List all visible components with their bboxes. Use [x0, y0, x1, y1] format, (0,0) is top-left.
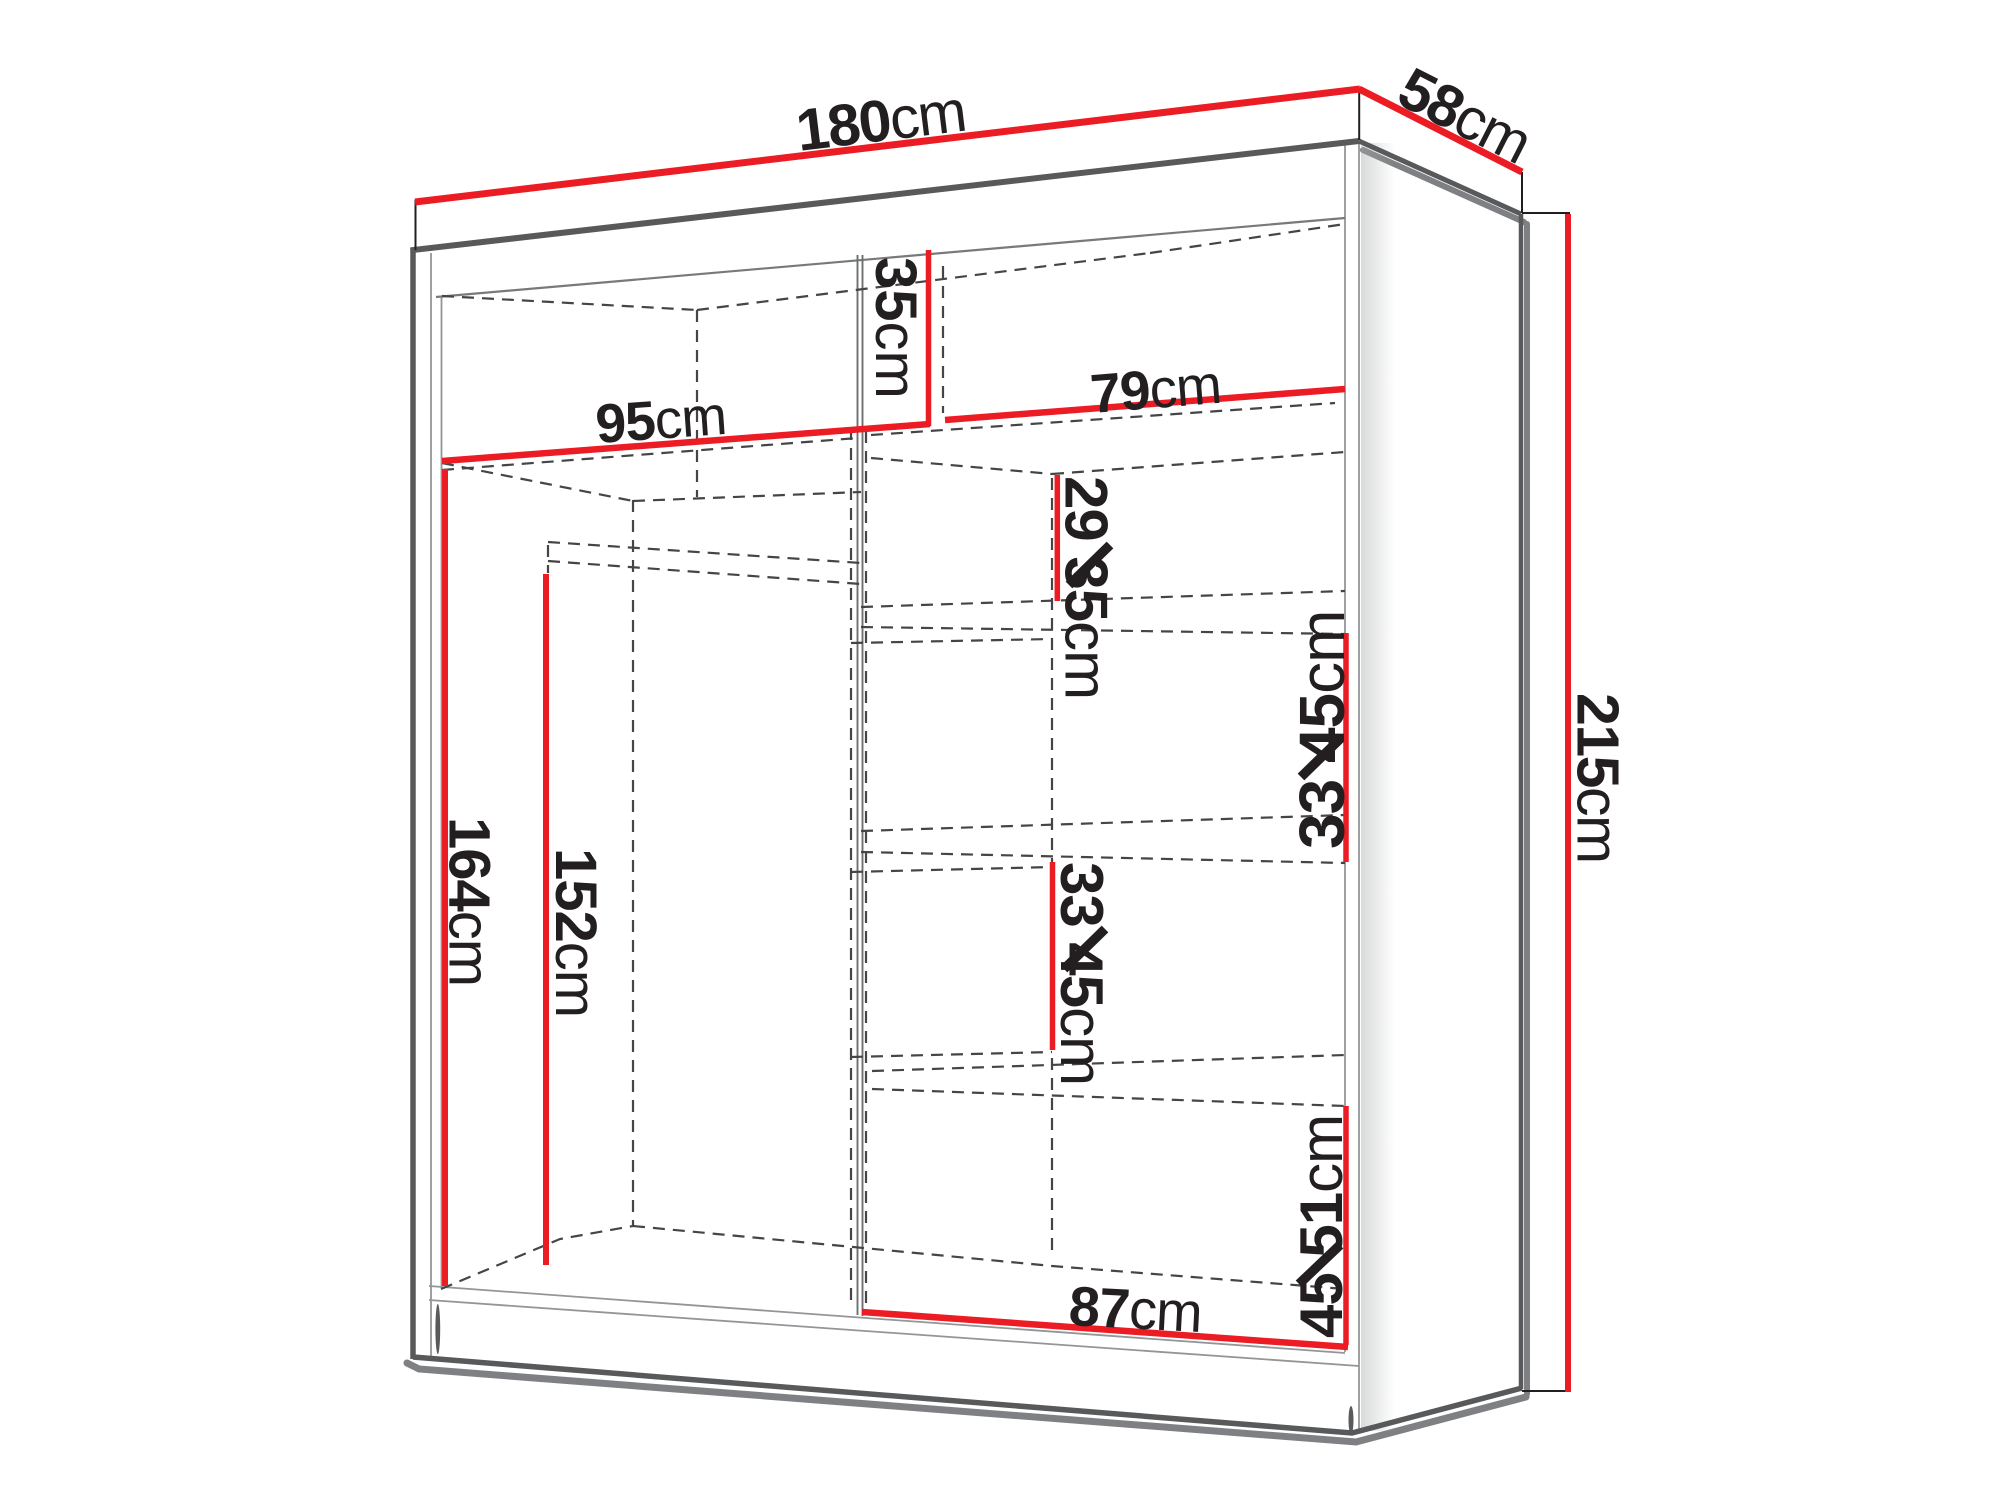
svg-text:164cm: 164cm	[437, 817, 502, 986]
svg-text:152cm: 152cm	[543, 848, 608, 1017]
svg-text:79cm: 79cm	[1088, 353, 1223, 425]
svg-text:95cm: 95cm	[594, 384, 729, 455]
svg-text:33 45cm: 33 45cm	[1286, 611, 1358, 849]
svg-text:35cm: 35cm	[863, 257, 928, 399]
svg-text:87cm: 87cm	[1067, 1274, 1203, 1344]
svg-text:215cm: 215cm	[1565, 693, 1631, 863]
svg-text:45 51cm: 45 51cm	[1288, 1115, 1355, 1338]
svg-text:29 35cm: 29 35cm	[1053, 476, 1120, 699]
svg-text:33 45cm: 33 45cm	[1048, 862, 1115, 1085]
